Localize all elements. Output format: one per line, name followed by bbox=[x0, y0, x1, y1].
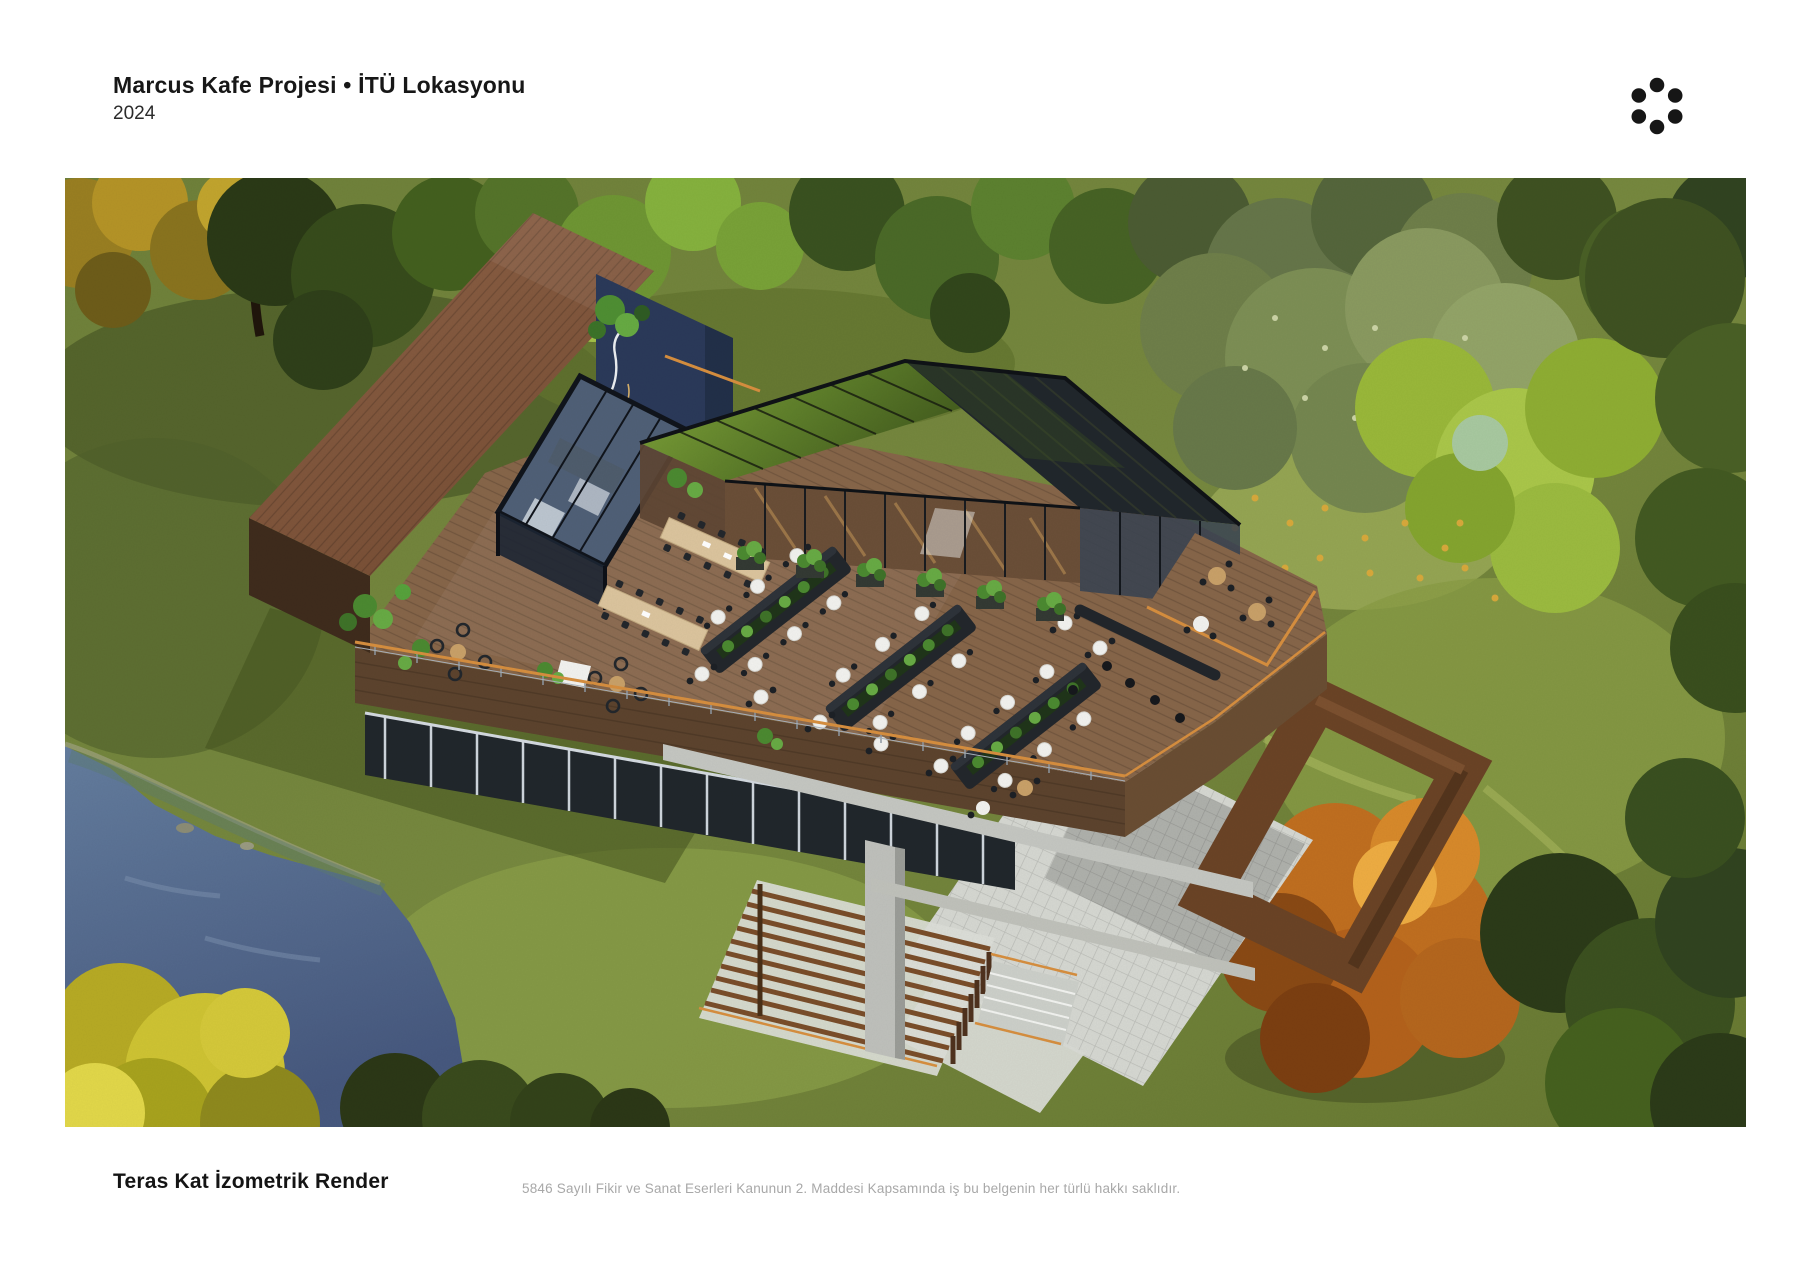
texture-overlay bbox=[65, 178, 1746, 1127]
presentation-page: Marcus Kafe Projesi • İTÜ Lokasyonu 2024 bbox=[0, 0, 1810, 1280]
render-caption: Teras Kat İzometrik Render bbox=[113, 1170, 389, 1194]
isometric-render bbox=[65, 178, 1746, 1127]
copyright-disclaimer: 5846 Sayılı Fikir ve Sanat Eserleri Kanu… bbox=[522, 1181, 1180, 1196]
project-year: 2024 bbox=[113, 103, 155, 125]
project-title: Marcus Kafe Projesi • İTÜ Lokasyonu bbox=[113, 72, 526, 99]
dots-logo-icon bbox=[1628, 77, 1686, 135]
dots-logo bbox=[1628, 77, 1686, 135]
render-scene bbox=[65, 178, 1746, 1127]
